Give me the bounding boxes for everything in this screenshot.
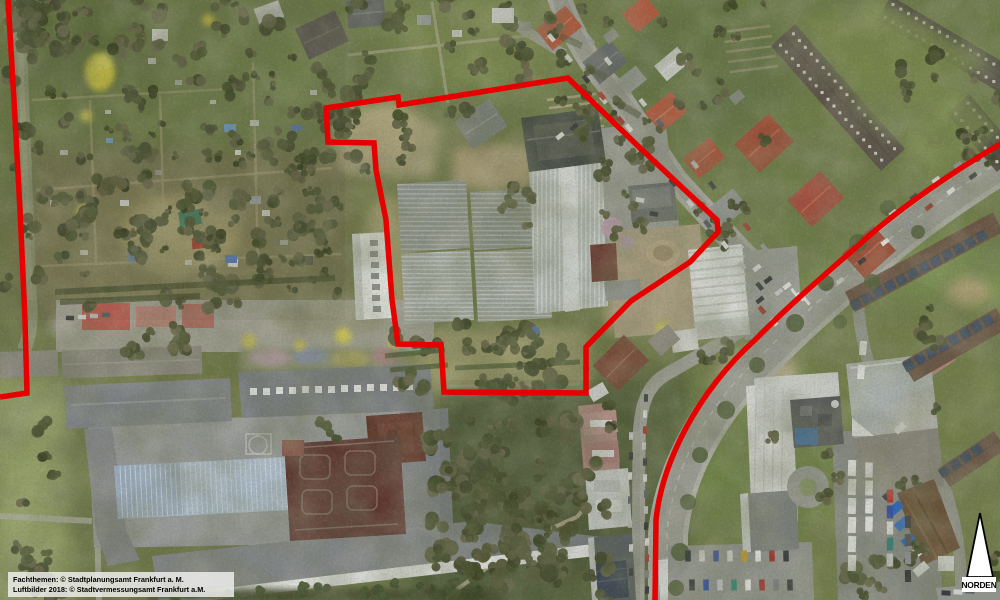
svg-text:Luftbilder 2018: © Stadtvermes: Luftbilder 2018: © Stadtvermessungsamt F… [13, 585, 205, 594]
svg-text:NORDEN: NORDEN [961, 580, 996, 590]
svg-text:Fachthemen: © Stadtplanungsamt: Fachthemen: © Stadtplanungsamt Frankfurt… [13, 575, 184, 584]
